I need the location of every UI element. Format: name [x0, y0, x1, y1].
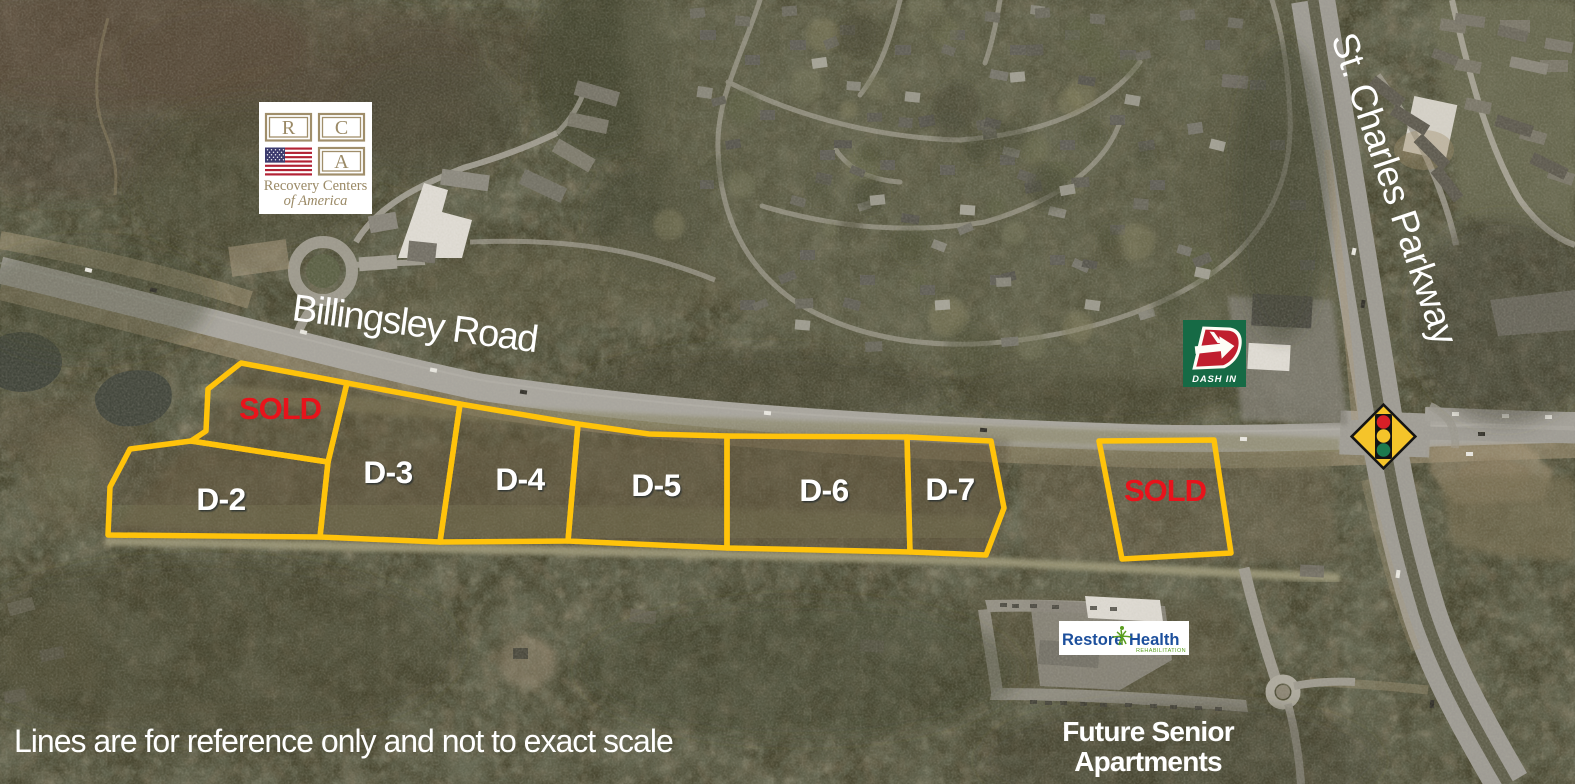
svg-text:SOLD: SOLD — [239, 391, 322, 426]
svg-text:R: R — [282, 117, 296, 139]
svg-text:Health: Health — [1129, 631, 1179, 649]
svg-text:D-7: D-7 — [925, 471, 974, 507]
svg-text:Lines are for reference only a: Lines are for reference only and not to … — [14, 723, 673, 759]
svg-text:D-2: D-2 — [196, 481, 245, 517]
svg-text:C: C — [335, 117, 348, 139]
svg-text:Recovery Centers: Recovery Centers — [264, 178, 368, 194]
svg-text:Restore: Restore — [1062, 631, 1123, 649]
svg-text:D-4: D-4 — [495, 461, 545, 497]
svg-text:Apartments: Apartments — [1074, 746, 1222, 777]
svg-text:D-3: D-3 — [363, 454, 412, 490]
svg-text:REHABILITATION: REHABILITATION — [1136, 648, 1186, 654]
svg-text:of America: of America — [284, 193, 348, 209]
svg-text:D-6: D-6 — [799, 472, 848, 508]
svg-text:DASH IN: DASH IN — [1192, 374, 1237, 385]
svg-text:SOLD: SOLD — [1124, 473, 1207, 508]
svg-text:D-5: D-5 — [631, 467, 680, 503]
svg-text:Future Senior: Future Senior — [1062, 716, 1235, 747]
svg-text:A: A — [334, 151, 349, 173]
